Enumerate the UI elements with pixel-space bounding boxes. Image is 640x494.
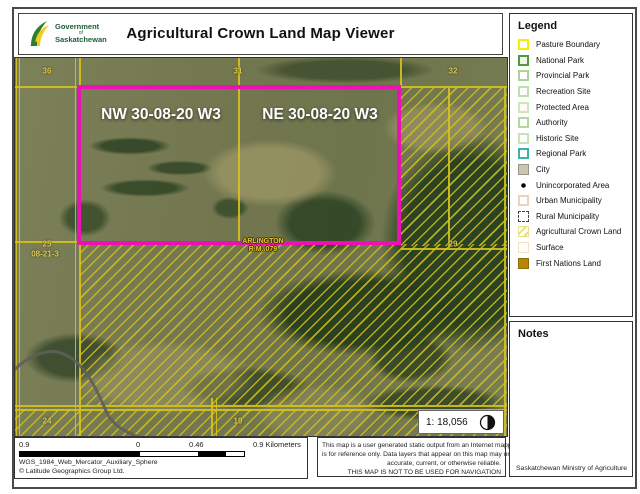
historic-site-swatch (518, 133, 529, 144)
legend-item-label: Unincorporated Area (536, 181, 609, 190)
map-canvas: NW 30-08-20 W3 NE 30-08-20 W3 36 31 32 2… (14, 57, 508, 437)
scalebar-label-mid: 0.46 (189, 440, 204, 449)
quarter-label-nw: NW 30-08-20 W3 (101, 106, 221, 124)
unincorporated-area-dot (518, 180, 529, 191)
projection-text: WGS_1984_Web_Mercator_Auxiliary_Sphere (19, 459, 158, 466)
scalebar-panel: 0.9 0 0.46 0.9 Kilometers WGS_1984_Web_M… (14, 437, 308, 479)
legend-item-label: National Park (536, 56, 584, 65)
section-label-19: 19 (234, 417, 243, 426)
national-park-swatch (518, 55, 529, 66)
disclaimer-line-3: accurate, current, or otherwise reliable… (322, 459, 501, 468)
legend-item-label: Historic Site (536, 134, 579, 143)
page-title: Agricultural Crown Land Map Viewer (19, 25, 502, 42)
north-arrow-icon (479, 414, 496, 431)
legend-item-label: City (536, 165, 550, 174)
scalebar-segment-3 (198, 452, 226, 456)
rm-number: R.M. 079 (242, 246, 283, 254)
legend-item-provincial-park: Provincial Park (518, 68, 632, 84)
disclaimer-line-4: THIS MAP IS NOT TO BE USED FOR NAVIGATIO… (322, 468, 501, 477)
agricultural-crown-land-swatch (518, 226, 529, 237)
section-label-29: 29 (449, 240, 458, 249)
legend-item-label: Pasture Boundary (536, 40, 600, 49)
legend-item-label: Regional Park (536, 149, 586, 158)
rm-arlington-label: ARLINGTON R.M. 079 (242, 238, 283, 255)
legend-item-rural-municipality: Rural Municipality (518, 209, 632, 225)
scalebar-label-left: 0.9 (19, 440, 29, 449)
first-nations-land-swatch (518, 258, 529, 269)
city-swatch (518, 164, 529, 175)
rural-municipality-swatch (518, 211, 529, 222)
regional-park-swatch (518, 148, 529, 159)
scalebar-label-right: 0.9 Kilometers (253, 440, 301, 449)
legend-item-historic-site: Historic Site (518, 131, 632, 147)
legend-item-pasture-boundary: Pasture Boundary (518, 37, 632, 53)
section-label-36: 36 (43, 67, 52, 76)
legend-item-urban-municipality: Urban Municipality (518, 193, 632, 209)
legend-item-authority: Authority (518, 115, 632, 131)
scale-readout: 1: 18,056 (418, 410, 504, 434)
legend-item-label: First Nations Land (536, 259, 601, 268)
disclaimer-line-1: This map is a user generated static outp… (322, 441, 501, 450)
scalebar-label-zero: 0 (136, 440, 140, 449)
legend-item-label: Authority (536, 118, 568, 127)
section-label-32: 32 (449, 67, 458, 76)
header: Government of Saskatchewan Agricultural … (18, 13, 503, 55)
copyright-text: © Latitude Geographics Group Ltd. (19, 468, 125, 475)
section-label-24: 24 (43, 417, 52, 426)
scale-ratio: 1: 18,056 (426, 417, 468, 428)
scalebar-segment-2 (140, 452, 198, 456)
legend-item-first-nations-land: First Nations Land (518, 255, 632, 271)
protected-area-swatch (518, 102, 529, 113)
legend-item-city: City (518, 162, 632, 178)
notes-title: Notes (518, 328, 624, 340)
provincial-park-swatch (518, 70, 529, 81)
disclaimer-line-2: is for reference only. Data layers that … (322, 450, 501, 459)
scalebar (19, 451, 245, 457)
notes-panel: Notes Saskatchewan Ministry of Agricultu… (509, 321, 633, 477)
pasture-boundary-swatch (518, 39, 529, 50)
legend-item-label: Urban Municipality (536, 196, 602, 205)
legend-item-surface: Surface (518, 240, 632, 256)
legend-item-national-park: National Park (518, 53, 632, 69)
section-label-25: 25 (43, 240, 52, 249)
section-label-08-21-3: 08-21-3 (31, 250, 59, 259)
scalebar-segment-1 (20, 452, 140, 456)
legend-item-label: Rural Municipality (536, 212, 599, 221)
recreation-site-swatch (518, 86, 529, 97)
legend-item-label: Agricultural Crown Land (536, 227, 621, 236)
legend-item-regional-park: Regional Park (518, 146, 632, 162)
scalebar-segment-4 (226, 452, 244, 456)
urban-municipality-swatch (518, 195, 529, 206)
legend-item-protected-area: Protected Area (518, 99, 632, 115)
legend-item-label: Recreation Site (536, 87, 591, 96)
legend-panel: Legend Pasture Boundary National Park Pr… (509, 13, 633, 317)
map-viewer-page: Government of Saskatchewan Agricultural … (0, 0, 640, 494)
disclaimer-panel: This map is a user generated static outp… (317, 437, 506, 477)
legend-item-unincorporated-area: Unincorporated Area (518, 177, 632, 193)
legend-title: Legend (518, 20, 632, 32)
legend-item-label: Protected Area (536, 103, 589, 112)
quarter-label-ne: NE 30-08-20 W3 (262, 106, 377, 124)
surface-swatch (518, 242, 529, 253)
authority-swatch (518, 117, 529, 128)
legend-item-recreation-site: Recreation Site (518, 84, 632, 100)
legend-item-label: Surface (536, 243, 564, 252)
legend-item-agricultural-crown-land: Agricultural Crown Land (518, 224, 632, 240)
section-label-31: 31 (234, 67, 243, 76)
ministry-footer: Saskatchewan Ministry of Agriculture (516, 465, 627, 472)
legend-item-label: Provincial Park (536, 71, 589, 80)
